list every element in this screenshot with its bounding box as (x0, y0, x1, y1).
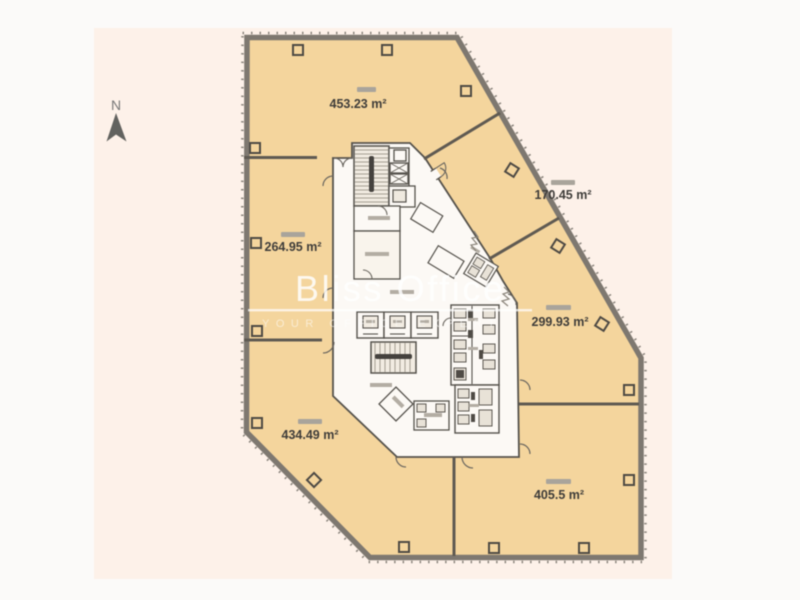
svg-text:453.23 m²: 453.23 m² (330, 97, 387, 111)
svg-text:YOUR OFFICE EXPERT: YOUR OFFICE EXPERT (262, 318, 501, 330)
svg-text:405.5 m²: 405.5 m² (534, 488, 584, 502)
svg-text:Bliss Office: Bliss Office (295, 268, 506, 309)
svg-text:264.95 m²: 264.95 m² (265, 240, 322, 254)
svg-text:299.93 m²: 299.93 m² (532, 315, 589, 329)
svg-text:N: N (111, 97, 121, 113)
svg-text:170.45 m²: 170.45 m² (535, 188, 592, 202)
svg-text:434.49 m²: 434.49 m² (282, 428, 339, 442)
